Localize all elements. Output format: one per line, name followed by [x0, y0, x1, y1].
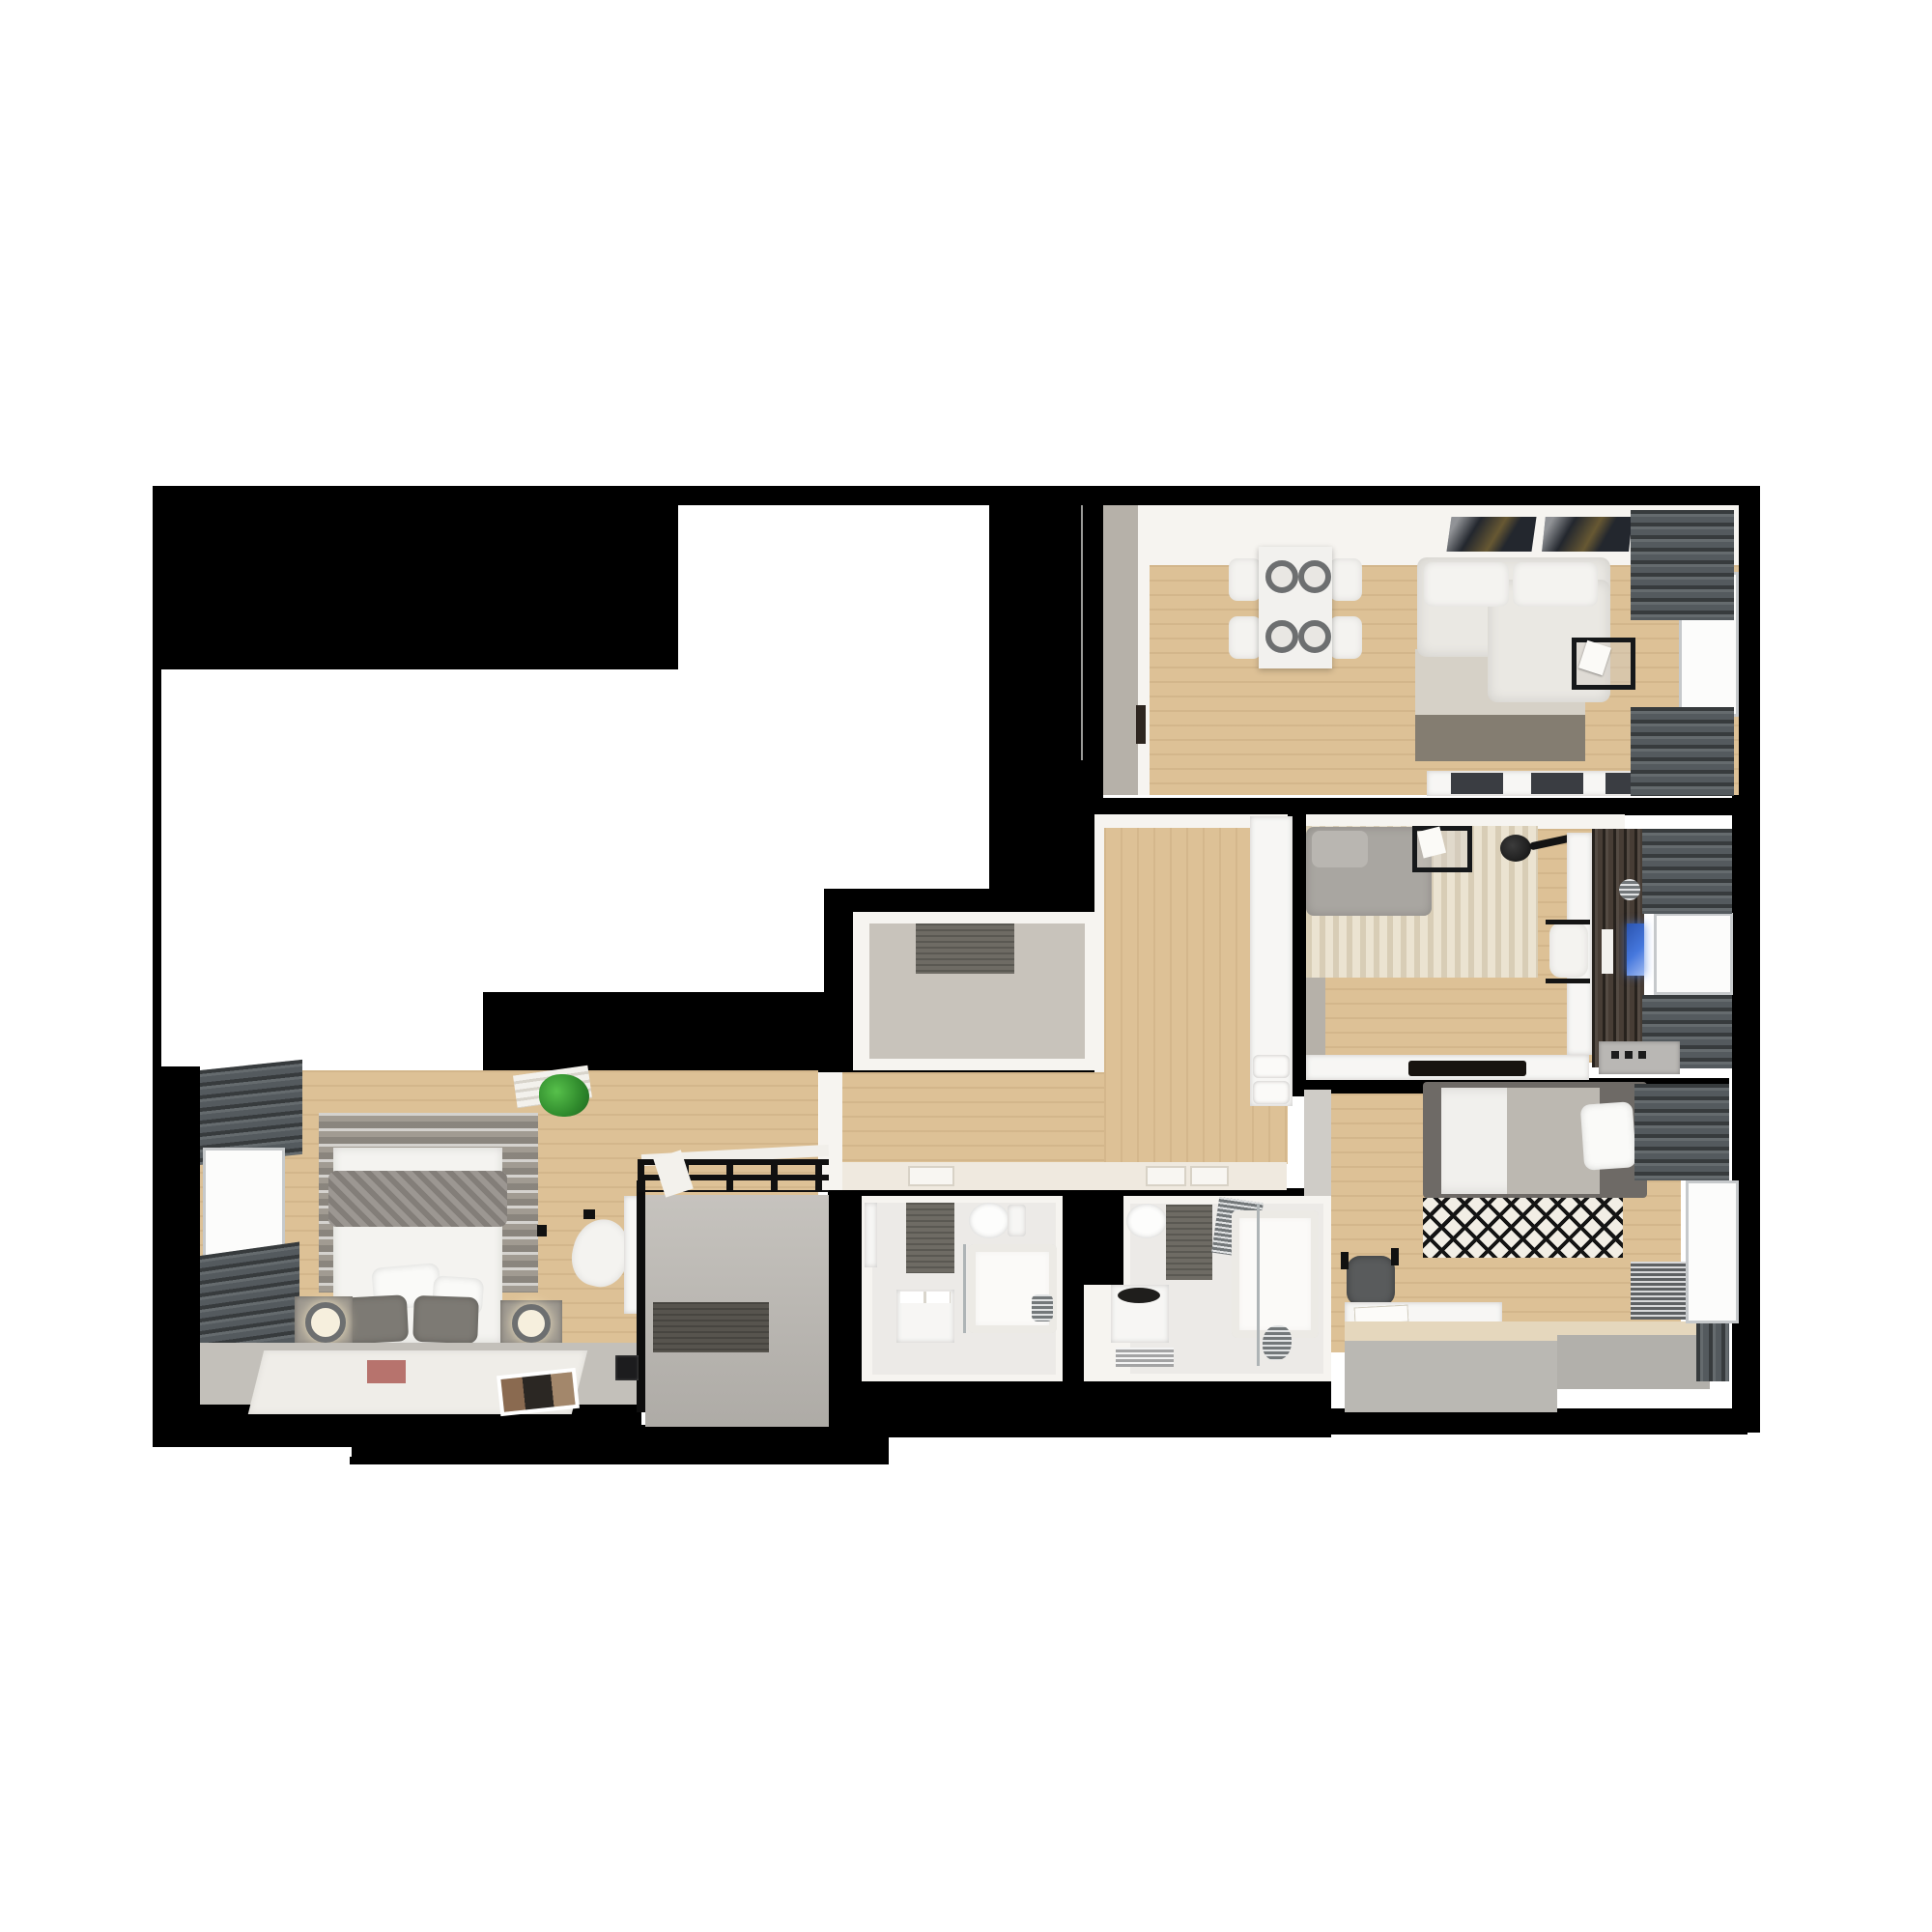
study-keyboard: [1602, 929, 1613, 974]
bedroom2-diamond-rug: [1423, 1198, 1623, 1258]
living-room-door-slot: [1136, 705, 1146, 744]
oven-stack: [1253, 1081, 1290, 1104]
table-lamp-right: [512, 1304, 551, 1343]
bedroom2-chair-arm: [1341, 1252, 1349, 1269]
mask-above-wardrobe: [824, 889, 1104, 914]
bathroom1-mat: [906, 1203, 954, 1273]
wardrobe-room-rug: [916, 923, 1014, 974]
place-setting: [1265, 620, 1298, 653]
bathroom1-glass-screen: [963, 1244, 966, 1333]
study-chair-arm: [1546, 920, 1590, 924]
bathroom2-vessel-sink: [1118, 1288, 1160, 1303]
living-room-curtain-bottom: [1631, 707, 1734, 796]
study-monitor-screen: [1627, 923, 1644, 976]
mask-left-line: [153, 669, 161, 1072]
living-room-top-left-notch: [1104, 814, 1150, 828]
mask-bottom-5: [1301, 1408, 1747, 1435]
study-wall-lamp: [1619, 879, 1640, 900]
entry-door-mat: [653, 1302, 769, 1352]
mask-left-of-wardrobe: [824, 912, 853, 1072]
oven-stack: [1253, 1055, 1290, 1078]
window-bench-front-step: [1557, 1335, 1710, 1389]
bathroom2-door-top: [1190, 1166, 1229, 1186]
study-sofa-cushion: [1312, 831, 1368, 867]
study-chair-arm: [1546, 979, 1590, 983]
bathroom2-floor-grate: [1116, 1348, 1174, 1367]
mask-bottom-4: [862, 1379, 1331, 1437]
mask-below-notch: [483, 992, 828, 1072]
section-line: [1081, 505, 1083, 760]
bathroom2-door-top: [1146, 1166, 1186, 1186]
wall-art-left: [1446, 517, 1536, 552]
sofa-cushion: [1424, 562, 1509, 607]
dining-chair: [1329, 558, 1362, 601]
study-desk-chair: [1549, 923, 1588, 978]
plant-pot: [529, 1090, 547, 1103]
study-window: [1654, 913, 1733, 995]
bathroom2-glass-pole: [1257, 1204, 1260, 1366]
bedroom2-window: [1686, 1180, 1739, 1323]
mask-between-bathrooms: [1058, 1196, 1123, 1288]
place-setting: [1298, 560, 1331, 593]
bathroom2-bathtub: [1232, 1210, 1319, 1338]
printer-knobs: [1611, 1051, 1650, 1059]
mask-entry-right-column: [828, 1190, 862, 1432]
living-room-left-wall-edge: [1138, 505, 1150, 795]
mask-livingroom-study-gap: [1094, 798, 1760, 815]
bathroom1-toilet-tank: [1008, 1205, 1026, 1236]
bathroom2-shower-hose: [1263, 1325, 1292, 1360]
living-room-left-wall: [1103, 505, 1142, 795]
mask-topleft-block: [153, 486, 678, 669]
mask-left-block: [153, 1066, 200, 1443]
tv-sideboard-module: [1451, 773, 1503, 794]
bathroom1-faucet: [1032, 1294, 1053, 1321]
bedroom2-curtain-top: [1634, 1084, 1729, 1180]
bathroom1-door: [865, 1203, 877, 1267]
floor-lamp-head: [1500, 835, 1531, 862]
bathroom2-mat: [1166, 1205, 1212, 1280]
window-bench-front: [1345, 1341, 1557, 1412]
living-room-rug-dark-band: [1415, 715, 1585, 761]
living-room-curtain-top: [1631, 510, 1734, 620]
study-curtain-top: [1642, 829, 1732, 914]
floorplan-render: [0, 0, 1932, 1932]
place-setting: [1265, 560, 1298, 593]
intercom-panel: [615, 1355, 639, 1380]
bathroom1-towels: [900, 1292, 951, 1303]
vanity-hook: [537, 1225, 547, 1236]
runner-print-red: [367, 1360, 406, 1383]
table-lamp-left: [305, 1302, 346, 1343]
bedroom2-pillow: [1580, 1101, 1637, 1171]
bedroom2-chair-arm: [1391, 1248, 1399, 1265]
bathroom1-toilet-bowl: [969, 1203, 1009, 1238]
tv-sideboard-module: [1531, 773, 1583, 794]
dining-chair: [1329, 616, 1362, 659]
dining-chair: [1229, 558, 1262, 601]
bedroom1-quilt: [328, 1171, 507, 1227]
bedroom2-curtain-side: [1696, 1323, 1729, 1381]
mask-bottom-underline: [350, 1457, 889, 1464]
bathroom2-toilet-bowl: [1126, 1204, 1167, 1238]
bathroom1-door-top: [908, 1166, 954, 1186]
bedroom1-pillow-gray: [412, 1295, 479, 1344]
dining-chair: [1229, 616, 1262, 659]
wall-art-right: [1542, 517, 1633, 552]
place-setting: [1298, 620, 1331, 653]
console-tray: [1408, 1061, 1526, 1076]
corridor-floor: [842, 1072, 1104, 1164]
bedroom2-office-chair: [1347, 1256, 1395, 1306]
sofa-cushion: [1513, 562, 1598, 607]
vanity-hook: [583, 1209, 595, 1219]
mask-notch-column: [989, 497, 1103, 915]
